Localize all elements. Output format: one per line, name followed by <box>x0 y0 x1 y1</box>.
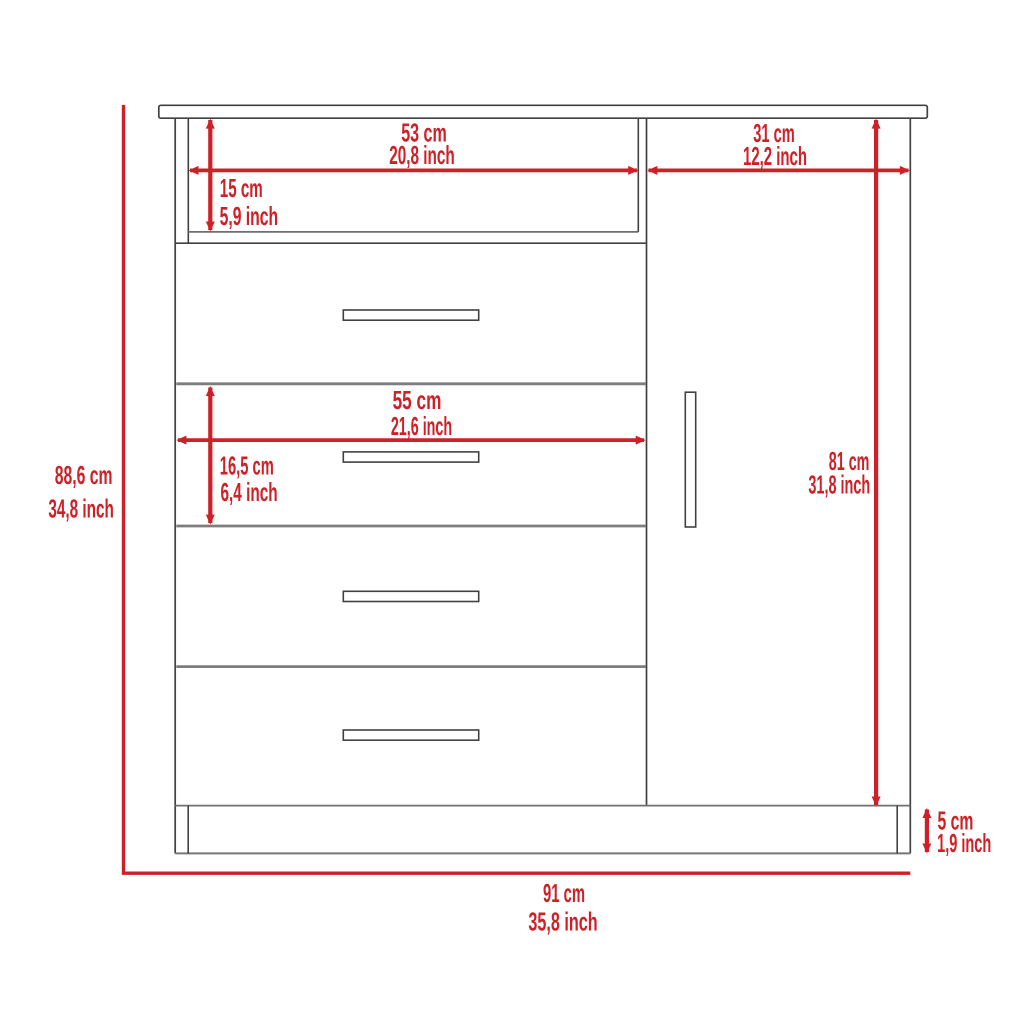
svg-text:16,5 cm: 16,5 cm <box>220 450 274 480</box>
svg-text:88,6 cm: 88,6 cm <box>55 460 113 490</box>
svg-text:1,9 inch: 1,9 inch <box>937 828 991 858</box>
svg-text:21,6 inch: 21,6 inch <box>391 411 452 441</box>
svg-text:31,8 inch: 31,8 inch <box>808 469 870 499</box>
svg-text:20,8 inch: 20,8 inch <box>389 140 455 170</box>
svg-text:35,8 inch: 35,8 inch <box>528 907 597 937</box>
svg-text:34,8 inch: 34,8 inch <box>48 494 113 524</box>
svg-text:6,4 inch: 6,4 inch <box>221 477 278 507</box>
svg-text:12,2 inch: 12,2 inch <box>743 141 807 171</box>
svg-text:91 cm: 91 cm <box>543 878 585 908</box>
svg-text:15 cm: 15 cm <box>220 173 263 203</box>
svg-text:5,9 inch: 5,9 inch <box>220 201 279 231</box>
